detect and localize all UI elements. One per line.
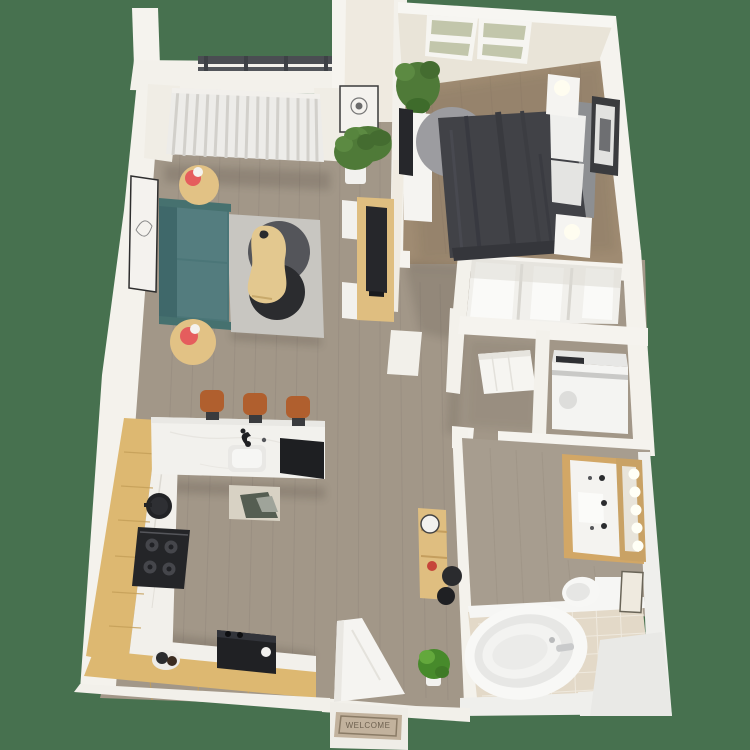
svg-text:WELCOME: WELCOME <box>346 721 391 730</box>
